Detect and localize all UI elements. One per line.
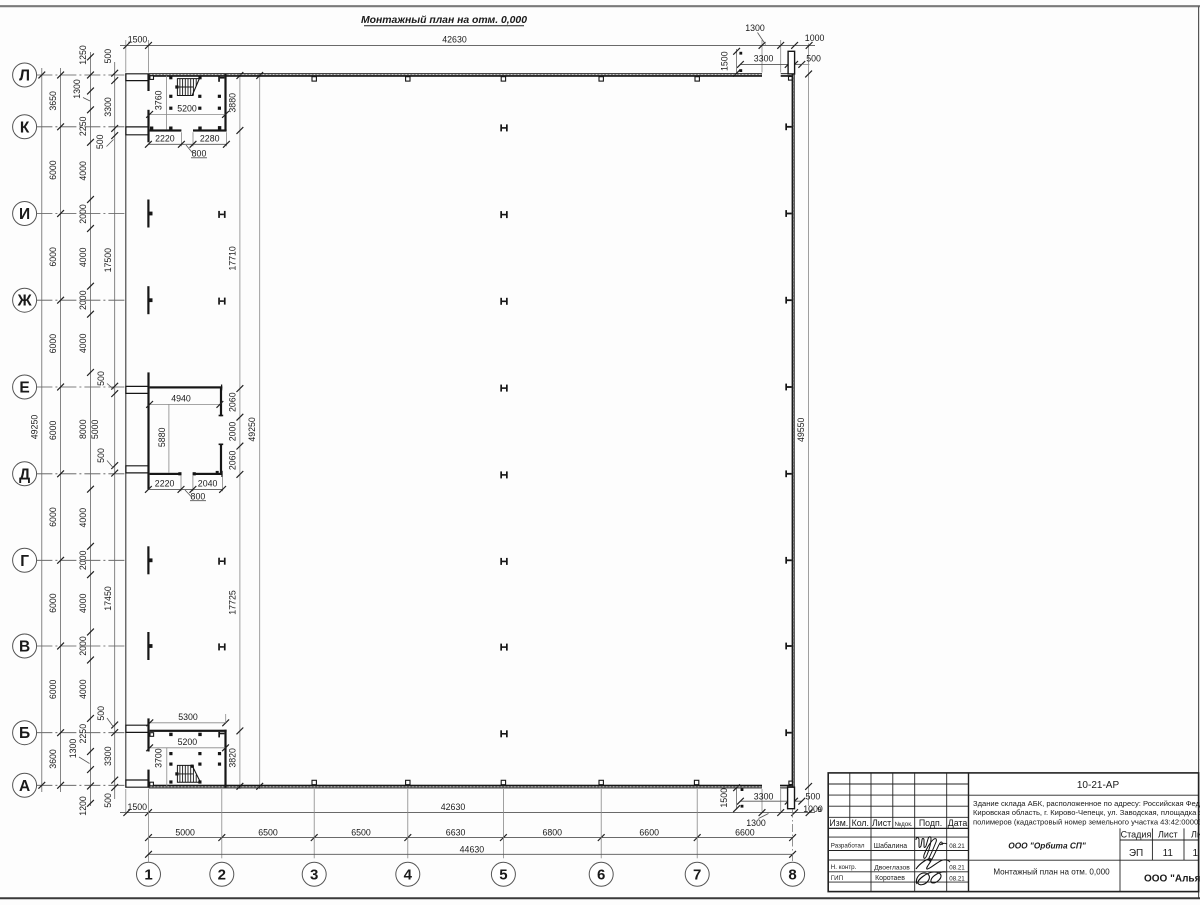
svg-text:5300: 5300 xyxy=(178,712,198,722)
svg-text:2060: 2060 xyxy=(227,451,237,471)
svg-text:6600: 6600 xyxy=(639,828,659,838)
svg-text:49250: 49250 xyxy=(247,417,257,442)
svg-text:3650: 3650 xyxy=(48,91,58,111)
svg-text:Монтажный план на отм. 0,000: Монтажный план на отм. 0,000 xyxy=(993,868,1110,877)
svg-text:17725: 17725 xyxy=(227,590,237,615)
svg-text:800: 800 xyxy=(191,492,206,502)
svg-text:3600: 3600 xyxy=(48,749,58,769)
svg-text:6000: 6000 xyxy=(48,247,58,267)
svg-text:2250: 2250 xyxy=(78,116,88,136)
svg-text:Листов: Листов xyxy=(1191,830,1200,840)
svg-text:А: А xyxy=(19,778,30,795)
svg-text:800: 800 xyxy=(192,149,207,159)
svg-text:2280: 2280 xyxy=(200,133,220,143)
svg-text:Монтажный план на отм. 0,000: Монтажный план на отм. 0,000 xyxy=(361,15,527,26)
svg-text:Разработал: Разработал xyxy=(831,843,865,850)
svg-text:3760: 3760 xyxy=(154,90,164,110)
svg-text:№док.: №док. xyxy=(895,821,913,828)
svg-text:Ж: Ж xyxy=(17,293,33,310)
svg-text:К: К xyxy=(20,119,30,136)
svg-text:2000: 2000 xyxy=(78,550,88,570)
svg-text:Дата: Дата xyxy=(948,818,968,828)
svg-text:2000: 2000 xyxy=(227,422,237,442)
svg-text:5000: 5000 xyxy=(175,828,195,838)
svg-text:5200: 5200 xyxy=(178,737,198,747)
svg-text:500: 500 xyxy=(96,706,106,721)
svg-text:17500: 17500 xyxy=(103,248,113,273)
svg-text:ООО "Альянс-Проект": ООО "Альянс-Проект" xyxy=(1144,874,1200,885)
svg-text:6000: 6000 xyxy=(48,593,58,613)
svg-text:1: 1 xyxy=(144,867,152,884)
svg-text:Б: Б xyxy=(19,725,30,742)
svg-text:08.21: 08.21 xyxy=(949,875,965,882)
svg-text:Кол.: Кол. xyxy=(852,818,869,828)
svg-text:3300: 3300 xyxy=(754,792,774,802)
svg-text:17710: 17710 xyxy=(227,246,237,271)
svg-text:500: 500 xyxy=(806,792,821,802)
svg-text:Г: Г xyxy=(20,553,29,570)
svg-text:1300: 1300 xyxy=(72,79,82,99)
svg-text:4000: 4000 xyxy=(78,679,88,699)
svg-text:1300: 1300 xyxy=(68,739,78,759)
svg-text:3700: 3700 xyxy=(153,748,163,768)
svg-text:5880: 5880 xyxy=(157,427,167,447)
svg-text:3300: 3300 xyxy=(103,97,113,117)
svg-text:3300: 3300 xyxy=(754,53,774,63)
svg-text:Лист: Лист xyxy=(1158,830,1178,840)
svg-text:08.21: 08.21 xyxy=(949,843,965,850)
svg-text:17450: 17450 xyxy=(103,586,113,611)
svg-text:2060: 2060 xyxy=(227,392,237,412)
svg-text:полимеров (кадастровый номер з: полимеров (кадастровый номер земельного … xyxy=(973,818,1200,827)
svg-text:3820: 3820 xyxy=(227,748,237,768)
svg-text:И: И xyxy=(19,206,30,223)
svg-text:Е: Е xyxy=(19,380,29,397)
svg-text:Л: Л xyxy=(19,68,30,85)
svg-text:1300: 1300 xyxy=(746,818,766,828)
svg-text:2000: 2000 xyxy=(78,636,88,656)
svg-text:5: 5 xyxy=(499,867,507,884)
svg-text:7: 7 xyxy=(693,867,701,884)
svg-text:6: 6 xyxy=(597,867,605,884)
svg-text:6800: 6800 xyxy=(543,828,563,838)
svg-text:6630: 6630 xyxy=(446,828,466,838)
svg-text:4: 4 xyxy=(404,867,413,884)
svg-text:ГИП: ГИП xyxy=(831,875,843,882)
svg-text:Лист: Лист xyxy=(872,818,891,828)
svg-text:5200: 5200 xyxy=(177,104,197,114)
svg-text:2220: 2220 xyxy=(155,479,175,489)
svg-text:49250: 49250 xyxy=(29,415,39,440)
svg-text:4940: 4940 xyxy=(171,394,191,404)
svg-text:1500: 1500 xyxy=(720,51,730,71)
svg-text:4000: 4000 xyxy=(78,333,88,353)
svg-text:500: 500 xyxy=(806,53,821,63)
svg-text:6000: 6000 xyxy=(48,421,58,441)
svg-text:Шабалина: Шабалина xyxy=(874,842,907,850)
svg-text:500: 500 xyxy=(103,49,113,64)
svg-text:ООО "Орбита СП": ООО "Орбита СП" xyxy=(1008,840,1087,850)
svg-text:10-21-АР: 10-21-АР xyxy=(1077,780,1120,791)
svg-text:1200: 1200 xyxy=(78,796,88,816)
svg-text:11: 11 xyxy=(1163,848,1174,859)
svg-text:6000: 6000 xyxy=(48,334,58,354)
svg-text:2000: 2000 xyxy=(78,290,88,310)
svg-text:1500: 1500 xyxy=(719,788,729,808)
svg-text:Н. контр.: Н. контр. xyxy=(831,864,857,871)
svg-text:1500: 1500 xyxy=(128,34,148,44)
svg-text:6500: 6500 xyxy=(258,828,278,838)
svg-text:4000: 4000 xyxy=(78,161,88,181)
svg-text:2: 2 xyxy=(218,867,226,884)
svg-text:Д: Д xyxy=(19,466,30,483)
svg-text:2040: 2040 xyxy=(198,479,218,489)
svg-text:6500: 6500 xyxy=(351,828,371,838)
svg-text:Изм.: Изм. xyxy=(829,818,848,828)
svg-text:ЭП: ЭП xyxy=(1129,848,1143,859)
svg-text:2220: 2220 xyxy=(155,133,175,143)
svg-text:Стадия: Стадия xyxy=(1121,830,1152,840)
svg-text:44630: 44630 xyxy=(460,844,485,854)
svg-text:6000: 6000 xyxy=(48,160,58,180)
svg-text:500: 500 xyxy=(95,134,105,149)
svg-text:6000: 6000 xyxy=(48,679,58,699)
svg-text:500: 500 xyxy=(96,371,106,386)
svg-text:500: 500 xyxy=(96,448,106,463)
svg-text:Коротаев: Коротаев xyxy=(875,875,905,882)
svg-text:3300: 3300 xyxy=(103,746,113,766)
svg-text:8: 8 xyxy=(788,867,796,884)
svg-text:08.21: 08.21 xyxy=(949,865,965,872)
svg-text:4000: 4000 xyxy=(78,247,88,267)
svg-text:4000: 4000 xyxy=(78,508,88,528)
svg-text:Кировская область, г. Кирово-Ч: Кировская область, г. Кирово-Чепецк, ул.… xyxy=(973,808,1200,817)
svg-text:В: В xyxy=(19,639,30,656)
svg-text:1500: 1500 xyxy=(128,802,148,812)
svg-text:500: 500 xyxy=(103,793,113,808)
svg-text:1300: 1300 xyxy=(745,23,765,33)
svg-text:8000: 8000 xyxy=(78,419,88,439)
svg-text:2000: 2000 xyxy=(78,204,88,224)
svg-text:1: 1 xyxy=(1193,848,1199,859)
svg-text:Здание склада АБК, расположенн: Здание склада АБК, расположенное по адре… xyxy=(973,799,1200,808)
svg-text:6000: 6000 xyxy=(48,507,58,527)
svg-text:6600: 6600 xyxy=(735,828,755,838)
svg-text:49550: 49550 xyxy=(796,417,806,442)
svg-text:Двоеглазов: Двоеглазов xyxy=(874,864,910,871)
svg-text:Подп.: Подп. xyxy=(919,818,942,828)
svg-text:3880: 3880 xyxy=(227,93,237,113)
svg-text:2250: 2250 xyxy=(78,724,88,744)
svg-text:42630: 42630 xyxy=(441,802,466,812)
svg-text:1000: 1000 xyxy=(805,33,825,43)
svg-text:1250: 1250 xyxy=(78,45,88,65)
svg-text:9: 9 xyxy=(817,805,821,814)
svg-text:42630: 42630 xyxy=(442,35,467,45)
svg-text:4000: 4000 xyxy=(78,593,88,613)
svg-text:3: 3 xyxy=(310,867,318,884)
svg-text:5000: 5000 xyxy=(90,420,100,440)
